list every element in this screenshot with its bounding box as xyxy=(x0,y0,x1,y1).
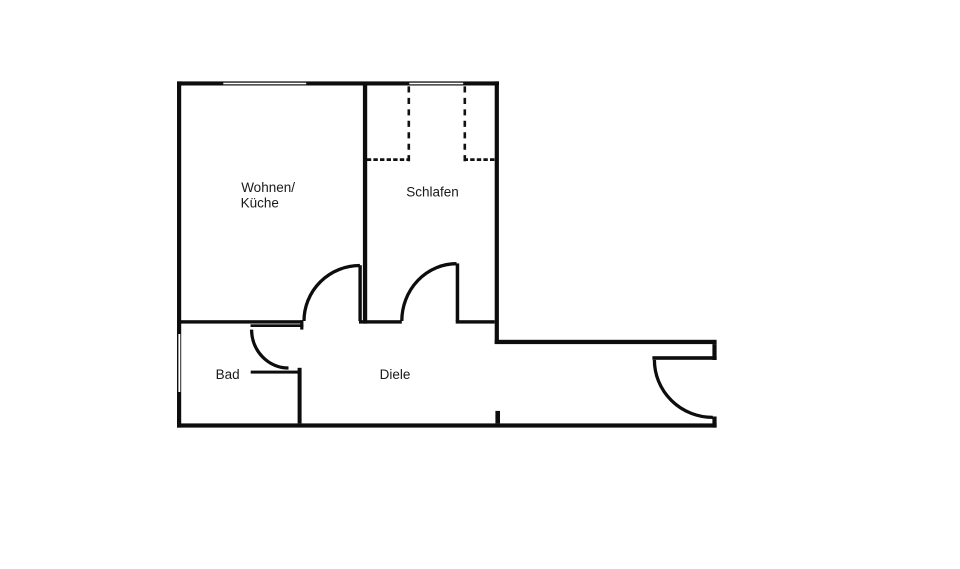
svg-text:Küche: Küche xyxy=(241,196,279,211)
svg-text:Diele: Diele xyxy=(380,367,411,382)
svg-text:Wohnen/: Wohnen/ xyxy=(241,180,295,195)
svg-text:Schlafen: Schlafen xyxy=(406,184,459,199)
svg-text:Bad: Bad xyxy=(216,367,240,382)
